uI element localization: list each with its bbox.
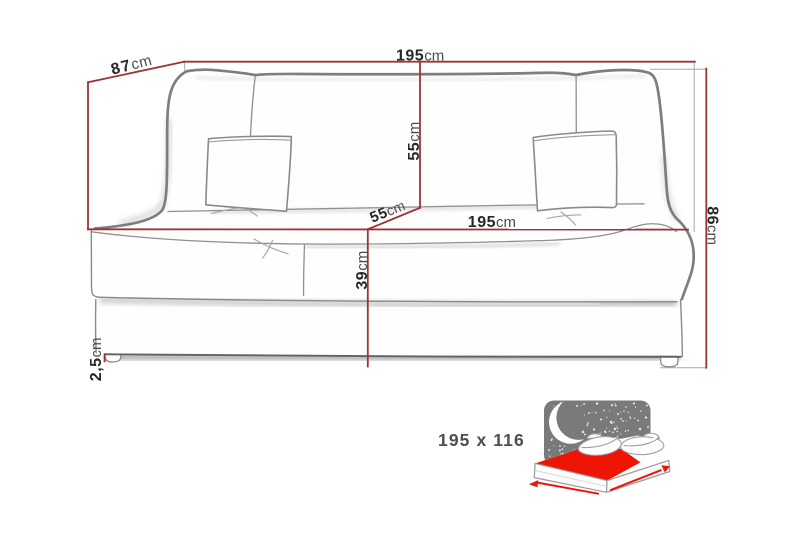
svg-text:86cm: 86cm <box>704 206 721 245</box>
svg-text:195 x 116: 195 x 116 <box>438 430 525 450</box>
svg-text:2,5cm: 2,5cm <box>88 337 105 381</box>
svg-text:195cm: 195cm <box>396 47 444 64</box>
svg-text:39cm: 39cm <box>354 251 371 290</box>
svg-text:195cm: 195cm <box>468 214 516 231</box>
svg-text:55cm: 55cm <box>406 122 423 161</box>
